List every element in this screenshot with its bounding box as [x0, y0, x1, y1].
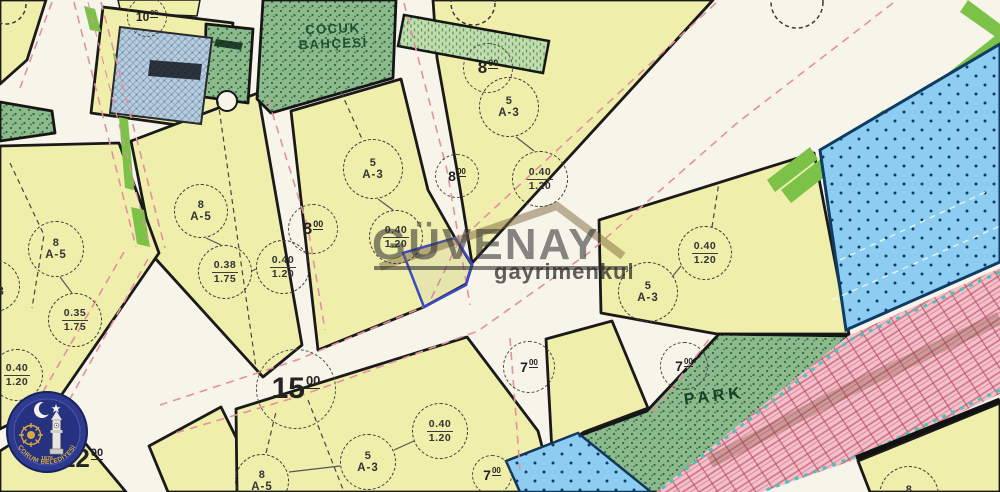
zoning-value: 8 — [198, 199, 205, 211]
zoning-code: 1.20 — [6, 376, 28, 389]
zoning-circle: 0.40 1.20 — [412, 403, 468, 459]
road-width-fraction: 00 — [150, 10, 158, 18]
zoning-value: 5 — [370, 157, 377, 169]
zoning-code: A-5 — [190, 211, 212, 224]
zoning-circle: 0.35 1.75 — [48, 293, 102, 347]
road-width-value: 7 — [675, 358, 683, 374]
municipality-logo: 1876 ÇORUM BELEDİYESİ — [6, 391, 88, 473]
zoning-code: 1.75 — [64, 321, 86, 334]
zoning-value: 8 — [53, 237, 60, 249]
zoning-circle: 5 A-3 — [343, 139, 403, 199]
road-width-value: 8 — [448, 168, 456, 184]
road-width-value: 7 — [520, 359, 528, 375]
road-width-fraction: 00 — [684, 357, 693, 367]
road-width-fraction: 00 — [91, 447, 103, 460]
zoning-circle: 0.40 1.20 — [512, 151, 568, 207]
road-width-fraction: 00 — [492, 466, 501, 476]
road-width-fraction: 00 — [306, 373, 320, 389]
zoning-code: A-3 — [637, 292, 659, 305]
zoning-circle: 8 A-5 — [28, 221, 84, 277]
cocuk-bahcesi-label: ÇOCUK BAHÇESİ — [277, 19, 390, 53]
road-width-value: 8 — [303, 219, 312, 239]
zoning-code: 1.75 — [214, 273, 236, 286]
zoning-map: 8 A-5 0.35 1.75 0.40 1.20 8 A-3 8 A-5 0.… — [0, 0, 1000, 492]
zoning-code: A-3 — [362, 169, 384, 182]
zoning-code: A-3 — [357, 462, 379, 475]
zoning-value: 0.40 — [427, 418, 453, 432]
road-width-marker: 7 00 — [660, 342, 708, 390]
road-width-value: 8 — [478, 58, 487, 78]
road-width-value: 7 — [483, 467, 491, 483]
zoning-value: 0.40 — [270, 254, 296, 268]
zoning-circle: 0.40 1.20 — [678, 226, 732, 280]
zoning-circle: 8 A-5 — [174, 184, 228, 238]
zoning-code: A-5 — [45, 249, 67, 262]
road-width-marker: 15 00 — [256, 349, 336, 429]
park-arch-notch — [217, 91, 237, 111]
zoning-code: A-5 — [251, 481, 273, 492]
zoning-value: 0.40 — [4, 362, 30, 376]
road-width-fraction: 00 — [313, 219, 323, 230]
zoning-code: A-3 — [0, 286, 5, 299]
road-width-value: 10 — [136, 10, 149, 24]
zoning-value: 0.38 — [212, 259, 238, 273]
zoning-value: 0.40 — [527, 166, 553, 180]
zoning-code: 1.20 — [529, 180, 551, 193]
zoning-code: 1.20 — [694, 254, 716, 267]
zoning-code: 1.20 — [272, 268, 294, 281]
zoning-circle: 5 A-3 — [340, 434, 396, 490]
road-width-marker: 8 00 — [288, 204, 338, 254]
road-width-fraction: 00 — [457, 167, 466, 177]
zoning-value: 0.35 — [62, 307, 88, 321]
zoning-value: 8 — [259, 469, 266, 481]
road-width-value: 15 — [272, 372, 305, 406]
road-width-fraction: 00 — [488, 58, 498, 69]
zoning-value: 5 — [506, 95, 513, 107]
road-width-marker: 8 00 — [463, 43, 513, 93]
road-width-marker: 7 00 — [503, 341, 555, 393]
zoning-circle: 0.38 1.75 — [198, 245, 252, 299]
watermark-subtext: gayrimenkul — [494, 259, 635, 285]
zoning-value: 5 — [365, 450, 372, 462]
zoning-code: 1.20 — [429, 432, 451, 445]
zoning-code: A-3 — [498, 107, 520, 120]
road-width-marker: 8 00 — [435, 154, 479, 198]
zoning-value: 0.40 — [692, 240, 718, 254]
road-width-marker: 7 00 — [472, 455, 512, 492]
zoning-value: 5 — [645, 280, 652, 292]
road-width-fraction: 00 — [529, 358, 538, 368]
zoning-value: 8 — [906, 484, 913, 492]
